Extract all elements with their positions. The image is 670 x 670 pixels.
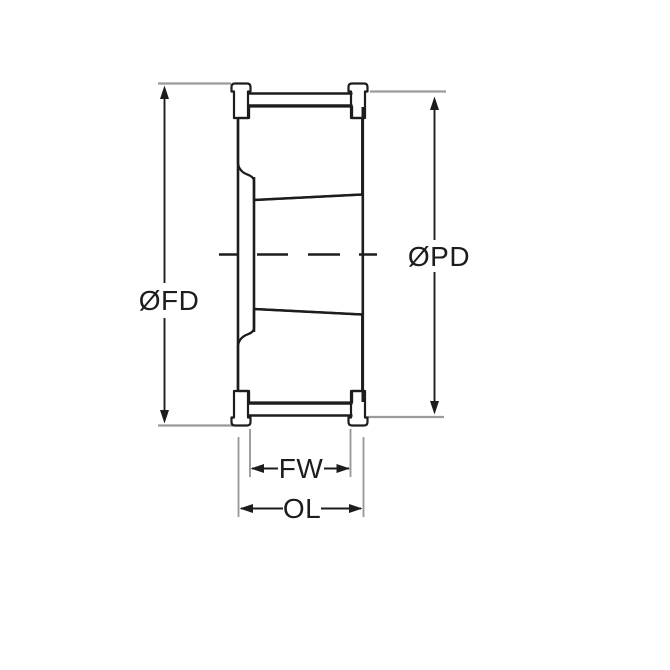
section-hatch-top [238,107,362,201]
pulley-dimension-drawing: ØFD ØPD FW OL [0,0,670,670]
ol-arrow-right [349,504,363,513]
flange-top-left [232,84,251,119]
fw-arrow-left [251,464,265,473]
dimension-fd: ØFD [139,86,200,424]
section-hatch-bottom [238,309,362,403]
rim-bottom [249,404,353,416]
dimension-ol: OL [240,493,363,524]
pd-label: ØPD [408,241,470,272]
bore-taper-edge-top [254,195,362,201]
pd-arrow-up [430,97,439,111]
ol-label: OL [283,493,321,524]
fw-arrow-right [337,464,351,473]
fd-arrow-up [160,86,169,100]
extension-lines [158,84,446,518]
dimension-pd: ØPD [408,97,470,415]
pulley-body [232,84,368,426]
dimension-fw: FW [251,453,351,484]
flange-bottom-left [232,391,251,426]
pd-arrow-down [430,401,439,415]
drawing-canvas: ØFD ØPD FW OL [0,0,670,670]
fd-label: ØFD [139,285,200,316]
bore-taper-edge-bottom [254,309,362,315]
ol-arrow-left [240,504,254,513]
rim-top [249,94,353,106]
fd-arrow-down [160,410,169,424]
flange-bottom-right [349,391,368,426]
fw-label: FW [279,453,324,484]
flange-top-right [349,84,368,119]
flanges [232,84,368,426]
